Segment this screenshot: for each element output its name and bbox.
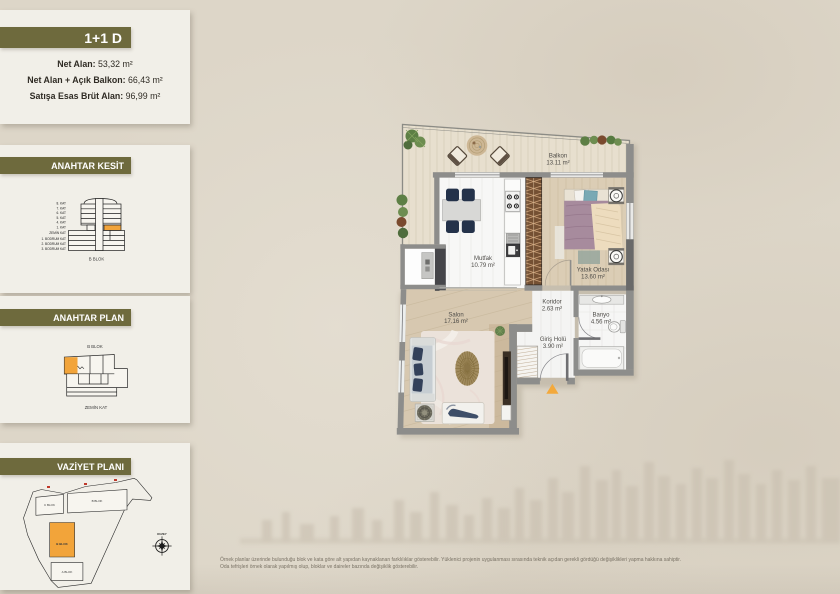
svg-text:13.60 m²: 13.60 m²	[581, 275, 605, 281]
svg-text:Banyo: Banyo	[592, 313, 610, 319]
svg-text:Balkon: Balkon	[549, 154, 567, 160]
svg-text:Mutfak: Mutfak	[474, 256, 493, 262]
svg-text:Giriş Holü: Giriş Holü	[540, 337, 566, 343]
svg-text:Yatak Odası: Yatak Odası	[577, 268, 610, 274]
svg-text:13.11 m²: 13.11 m²	[546, 161, 569, 167]
svg-text:17.16 m²: 17.16 m²	[444, 319, 468, 325]
svg-text:4.56 m²: 4.56 m²	[591, 320, 611, 326]
svg-text:Koridor: Koridor	[542, 300, 561, 306]
svg-text:Salon: Salon	[448, 313, 463, 319]
svg-text:3.90 m²: 3.90 m²	[543, 344, 563, 350]
svg-text:2.63 m²: 2.63 m²	[542, 307, 562, 313]
svg-text:10.79 m²: 10.79 m²	[471, 263, 495, 269]
